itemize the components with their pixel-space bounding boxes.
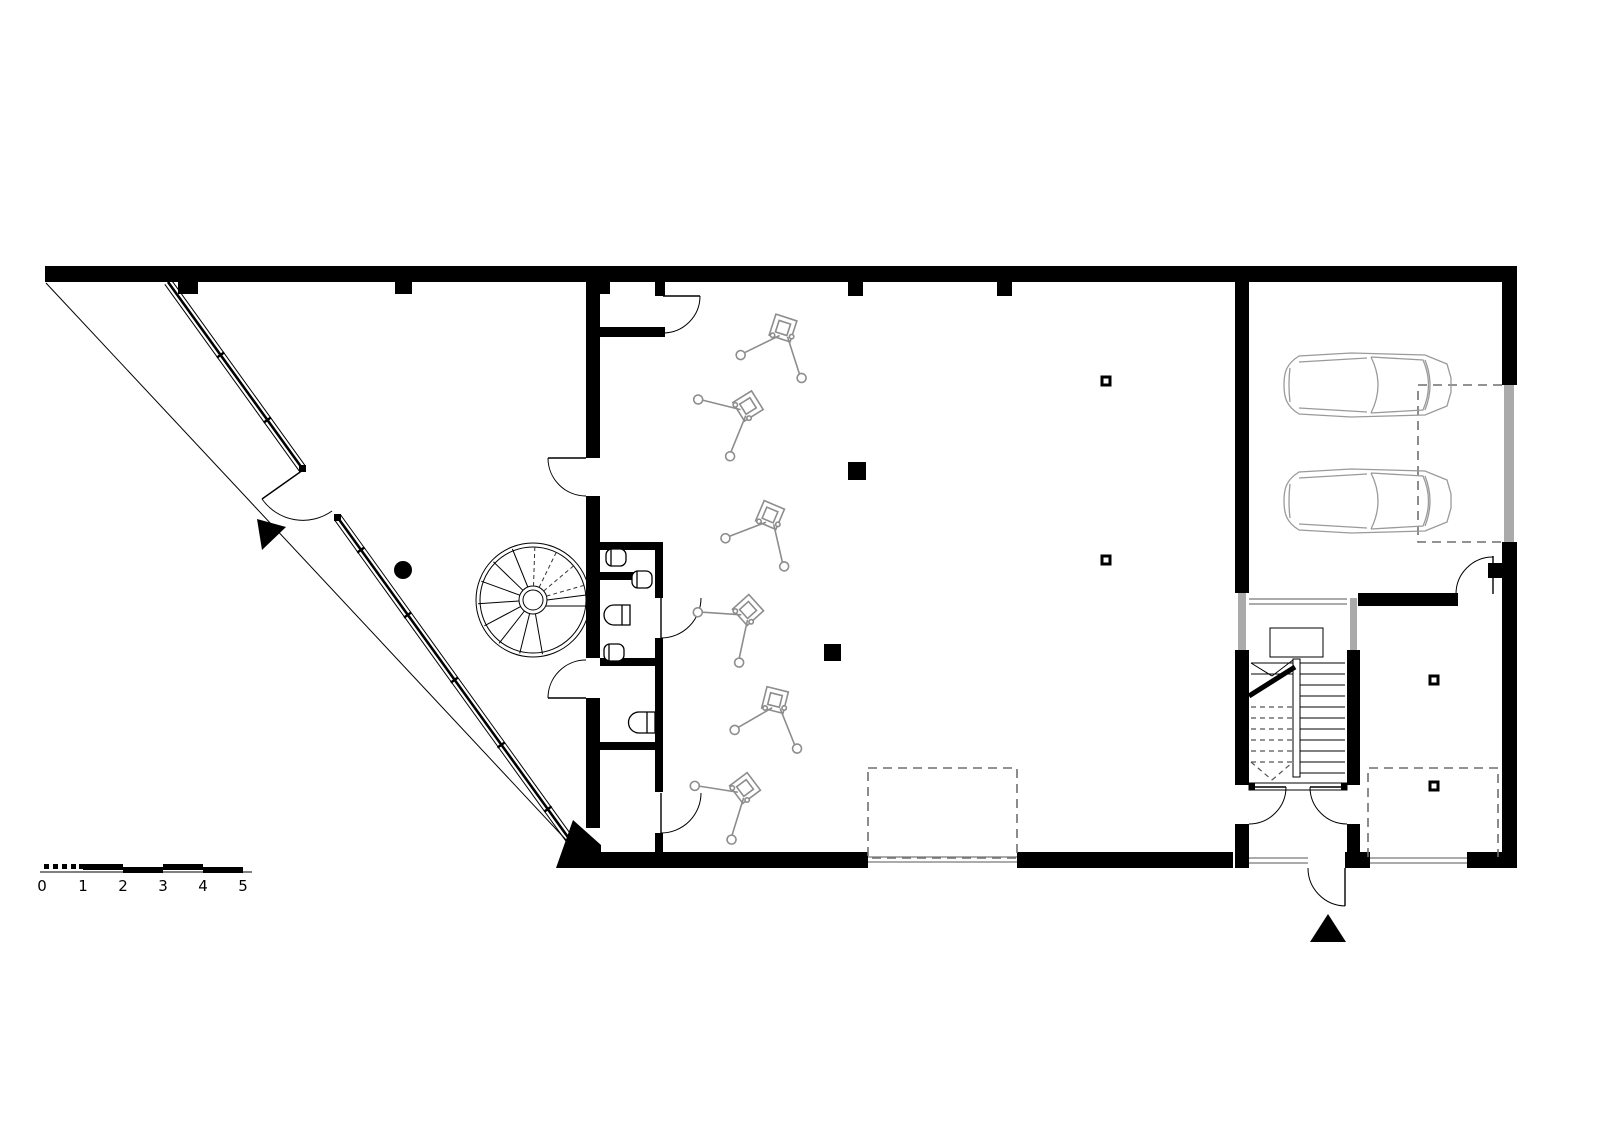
vestibule-door-east: [1310, 787, 1347, 824]
main-entrance-door: [1308, 868, 1345, 906]
easels: [680, 309, 816, 846]
steel-column: [1102, 377, 1110, 385]
steel-column: [1430, 676, 1438, 684]
wc-door: [661, 598, 701, 638]
scale-bar: 0 1 2 3 4 5: [37, 864, 252, 895]
closet-door: [663, 296, 700, 333]
scale-bar-labels: 0 1 2 3 4 5: [37, 877, 248, 895]
entrance-arrow-west: [257, 519, 286, 550]
easel: [680, 750, 776, 846]
vestibule-door-west: [1249, 787, 1286, 824]
garage-door: [1504, 385, 1514, 542]
facade-door: [262, 470, 332, 520]
lobby-door-south: [548, 660, 586, 698]
stair-treads-down: [1300, 663, 1345, 773]
parked-cars: [1284, 353, 1451, 533]
glass-facade: [165, 280, 586, 861]
garage-court-door: [1456, 556, 1493, 594]
easel: [684, 574, 780, 669]
toilet: [606, 549, 626, 566]
toilet: [604, 644, 624, 661]
square-column: [824, 644, 841, 661]
scale-label: 4: [198, 877, 208, 895]
sink: [629, 712, 656, 733]
floor-plan-drawing: 0 1 2 3 4 5: [0, 0, 1612, 1140]
square-column: [848, 462, 866, 480]
stair-treads-up: [1249, 660, 1295, 780]
main-staircase: [1249, 599, 1347, 790]
entrance-arrow-south: [1310, 914, 1346, 942]
steel-column: [1102, 556, 1110, 564]
lobby-door-north: [548, 458, 586, 496]
scale-label: 0: [37, 877, 47, 895]
car: [1284, 469, 1451, 533]
easel: [728, 683, 807, 753]
round-column: [394, 561, 412, 579]
floor-plan-page: 0 1 2 3 4 5: [0, 0, 1612, 1140]
facade-pilasters: [178, 282, 1502, 578]
steel-column: [1430, 782, 1438, 790]
scale-label: 2: [118, 877, 128, 895]
store-door: [661, 793, 701, 833]
scale-label: 3: [158, 877, 168, 895]
scale-label: 5: [238, 877, 248, 895]
spiral-staircase: [476, 543, 590, 657]
easel: [733, 309, 816, 384]
interior-walls: [586, 282, 1458, 868]
toilet: [632, 571, 652, 588]
easel: [717, 492, 804, 572]
scale-label: 1: [78, 877, 88, 895]
dashed-openings: [868, 385, 1502, 858]
easel: [683, 366, 778, 462]
columns: [824, 377, 1438, 790]
sink: [604, 605, 630, 625]
